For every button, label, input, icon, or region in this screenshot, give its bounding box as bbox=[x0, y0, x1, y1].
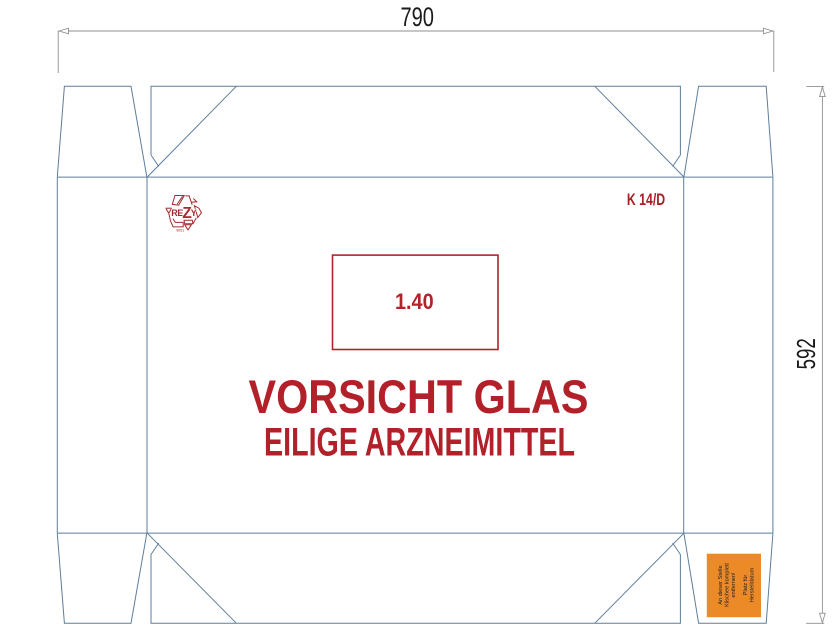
svg-text:K 14/D: K 14/D bbox=[627, 191, 665, 209]
svg-text:entfernen!: entfernen! bbox=[731, 572, 737, 598]
svg-text:1.40: 1.40 bbox=[395, 289, 434, 314]
svg-text:592: 592 bbox=[791, 338, 821, 369]
svg-text:Klischee komplett: Klischee komplett bbox=[725, 563, 731, 607]
svg-text:Platz für: Platz für bbox=[743, 575, 749, 596]
svg-text:9051: 9051 bbox=[176, 228, 184, 232]
svg-text:Y: Y bbox=[191, 208, 197, 218]
svg-text:EILIGE ARZNEIMITTEL: EILIGE ARZNEIMITTEL bbox=[264, 421, 575, 465]
svg-text:Herstelldatum: Herstelldatum bbox=[750, 567, 756, 602]
svg-text:790: 790 bbox=[400, 2, 434, 32]
svg-text:VORSICHT GLAS: VORSICHT GLAS bbox=[249, 370, 589, 423]
svg-text:An dieser Stelle: An dieser Stelle bbox=[718, 565, 724, 604]
